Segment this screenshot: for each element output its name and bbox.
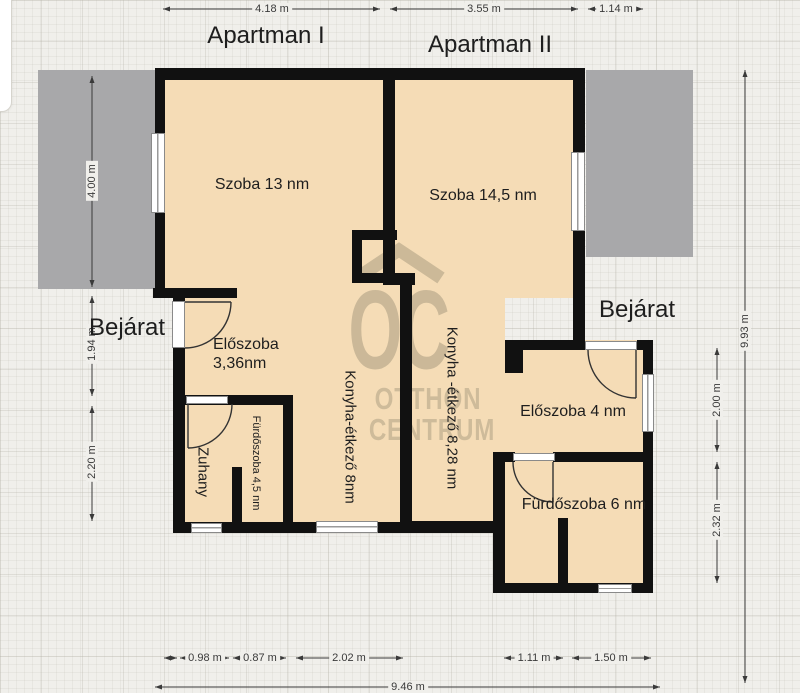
entrance-left-label: Bejárat (89, 314, 165, 342)
dimension-right-1: 9.93 m (739, 311, 751, 351)
dimension-top-3: 1.14 m (596, 3, 636, 15)
dimension-top-1: 4.18 m (252, 3, 292, 15)
dimension-bottom-total: 9.46 m (388, 681, 428, 693)
dimension-bottom-2: 0.87 m (240, 652, 280, 664)
room-label-eloszoba-1-line2: 3,36nm (213, 354, 279, 373)
room-label-furdoszoba-4-5: Fürdőszoba 4,5 nm (250, 416, 262, 511)
dimension-right-2: 2.00 m (711, 380, 723, 420)
room-label-eloszoba-1-line1: Előszoba (213, 335, 279, 354)
room-label-szoba-13: Szoba 13 nm (215, 176, 309, 194)
dimension-top-2: 3.55 m (464, 3, 504, 15)
room-label-konyha-1: Konyha-étkező 8nm (342, 370, 359, 503)
room-label-zuhany: Zuhany (195, 447, 212, 497)
door-arc (188, 404, 232, 448)
plan-annotations (0, 0, 800, 693)
room-label-eloszoba-2: Előszoba 4 nm (520, 403, 626, 421)
room-label-szoba-14-5: Szoba 14,5 nm (429, 187, 537, 205)
dimension-bottom-5: 1.50 m (591, 652, 631, 664)
apartment-2-title: Apartman II (428, 31, 552, 59)
dimension-right-3: 2.32 m (711, 500, 723, 540)
room-label-eloszoba-1: Előszoba 3,36nm (213, 335, 279, 373)
dimension-bottom-4: 1.11 m (515, 652, 554, 664)
dimension-bottom-3: 2.02 m (329, 652, 369, 664)
apartment-1-title: Apartman I (207, 22, 324, 50)
dimension-bottom-1: 0.98 m (185, 652, 225, 664)
floor-plan: OC OTTHON CENTRUM (0, 0, 800, 693)
dimension-left-3: 2.20 m (86, 442, 98, 482)
entrance-right-label: Bejárat (599, 296, 675, 324)
door-arc (588, 350, 636, 398)
room-label-furdoszoba-6: Fürdőszoba 6 nm (522, 496, 647, 514)
dimension-left-1: 4.00 m (86, 161, 98, 201)
room-label-konyha-2: Konyha -étkező 8,28 nm (444, 327, 461, 490)
